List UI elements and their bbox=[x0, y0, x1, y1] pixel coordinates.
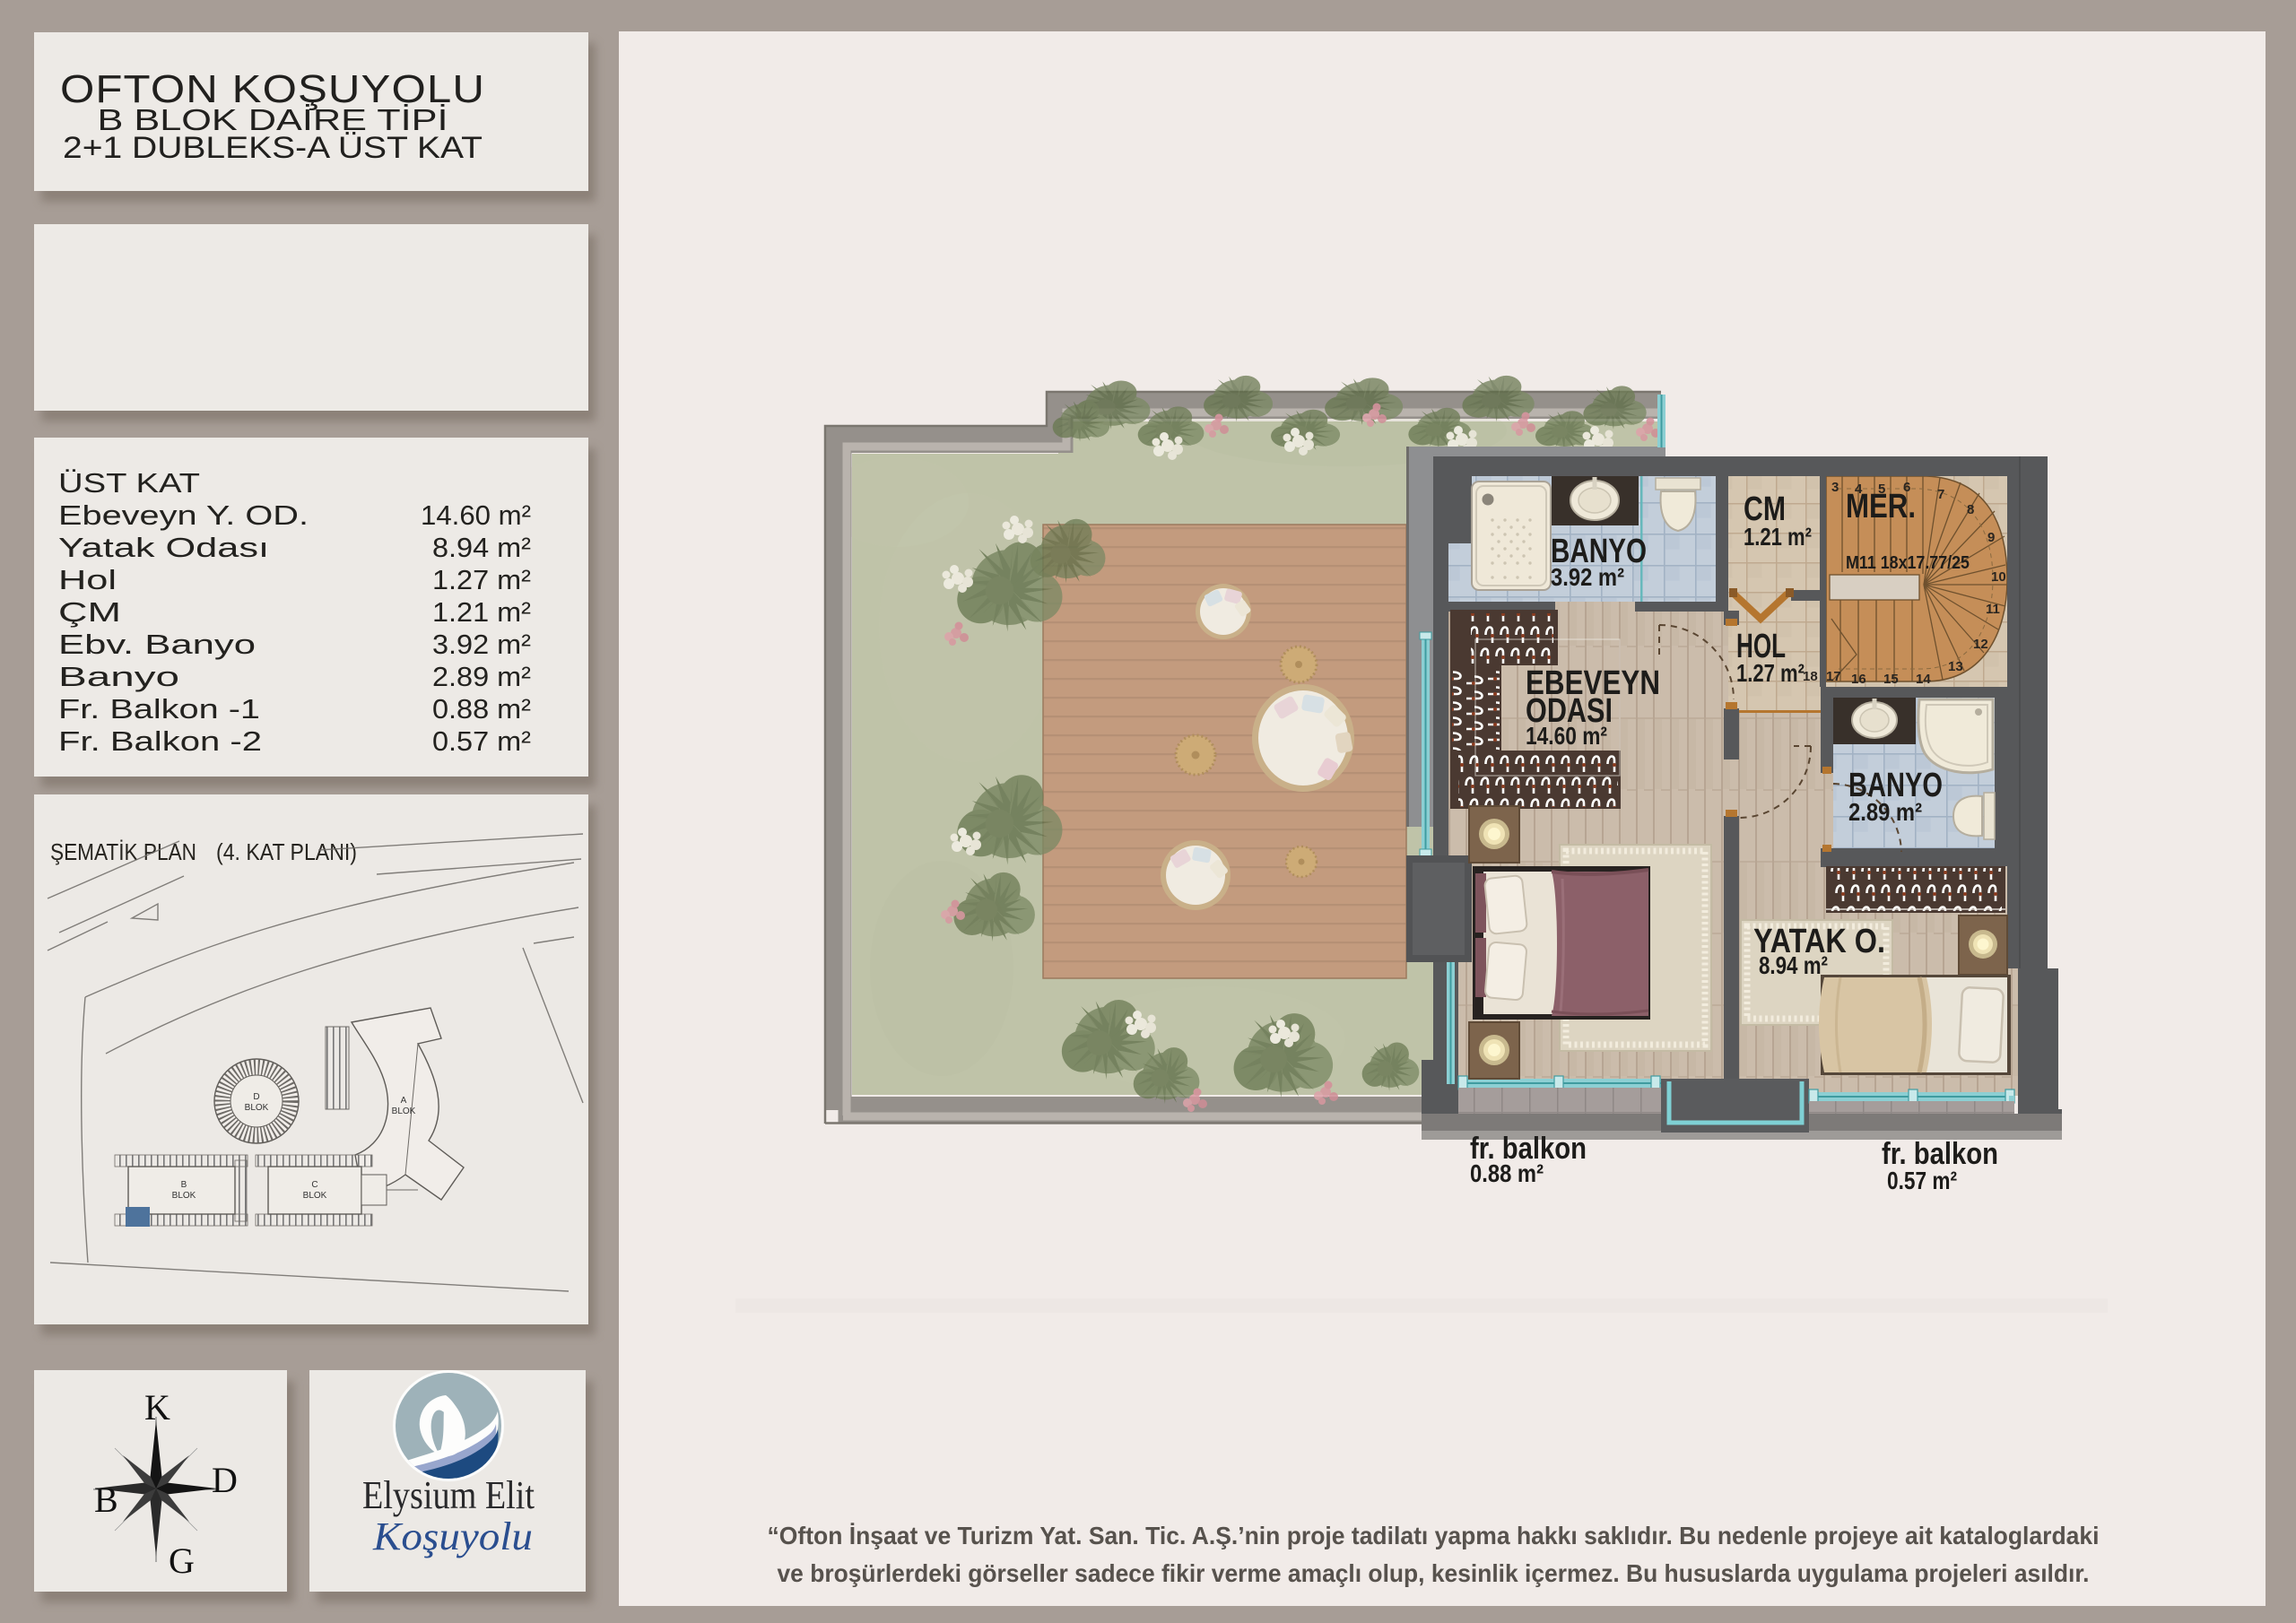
svg-text:C: C bbox=[311, 1180, 317, 1190]
svg-text:D: D bbox=[212, 1460, 238, 1500]
svg-text:14: 14 bbox=[1916, 672, 1931, 687]
svg-text:ÇM: ÇM bbox=[58, 596, 121, 628]
svg-text:14.60 m²: 14.60 m² bbox=[421, 499, 531, 531]
svg-text:3.92 m²: 3.92 m² bbox=[432, 629, 531, 660]
svg-text:3: 3 bbox=[1831, 480, 1839, 495]
svg-text:Banyo: Banyo bbox=[58, 661, 179, 692]
svg-text:18: 18 bbox=[1803, 669, 1818, 684]
svg-text:13: 13 bbox=[1948, 659, 1963, 674]
svg-text:0.88 m²: 0.88 m² bbox=[432, 693, 531, 725]
svg-text:2+1 DUBLEKS-A ÜST KAT: 2+1 DUBLEKS-A ÜST KAT bbox=[63, 131, 483, 165]
svg-text:BLOK: BLOK bbox=[245, 1103, 269, 1113]
svg-text:8.94 m²: 8.94 m² bbox=[1759, 951, 1828, 979]
svg-text:B: B bbox=[94, 1480, 118, 1520]
svg-text:Ebv. Banyo: Ebv. Banyo bbox=[58, 629, 256, 660]
svg-text:1.21 m²: 1.21 m² bbox=[432, 596, 531, 628]
svg-text:14.60 m²: 14.60 m² bbox=[1526, 722, 1607, 750]
svg-text:MER.: MER. bbox=[1846, 488, 1916, 525]
svg-text:Fr. Balkon -1: Fr. Balkon -1 bbox=[58, 693, 260, 725]
svg-text:0.57 m²: 0.57 m² bbox=[1887, 1167, 1957, 1194]
svg-text:9: 9 bbox=[1987, 530, 1995, 545]
svg-text:8: 8 bbox=[1967, 502, 1974, 517]
svg-text:1.27 m²: 1.27 m² bbox=[1736, 659, 1805, 687]
svg-text:1.21 m²: 1.21 m² bbox=[1744, 523, 1812, 551]
svg-text:2.89 m²: 2.89 m² bbox=[1848, 798, 1922, 826]
svg-text:15: 15 bbox=[1883, 672, 1899, 687]
svg-text:ve broşürlerdeki görseller sad: ve broşürlerdeki görseller sadece fikir … bbox=[778, 1559, 2090, 1587]
svg-text:Fr. Balkon -2: Fr. Balkon -2 bbox=[58, 725, 262, 757]
svg-text:7: 7 bbox=[1937, 487, 1944, 502]
svg-text:1.27 m²: 1.27 m² bbox=[432, 564, 531, 595]
svg-text:K: K bbox=[144, 1387, 170, 1428]
svg-text:A: A bbox=[401, 1096, 407, 1106]
svg-text:Hol: Hol bbox=[58, 564, 117, 595]
svg-text:17: 17 bbox=[1826, 669, 1841, 684]
svg-text:D: D bbox=[253, 1092, 259, 1102]
svg-text:G: G bbox=[169, 1541, 195, 1581]
svg-text:(4. KAT PLANI): (4. KAT PLANI) bbox=[216, 838, 357, 865]
svg-text:0.88 m²: 0.88 m² bbox=[1470, 1159, 1544, 1187]
svg-text:10: 10 bbox=[1991, 569, 2006, 585]
svg-text:8.94 m²: 8.94 m² bbox=[432, 532, 531, 563]
svg-text:Koşuyolu: Koşuyolu bbox=[372, 1515, 533, 1558]
svg-text:BLOK: BLOK bbox=[172, 1191, 196, 1201]
svg-text:0.57 m²: 0.57 m² bbox=[432, 725, 531, 757]
svg-text:ÜST KAT: ÜST KAT bbox=[58, 467, 200, 499]
svg-text:11: 11 bbox=[1986, 602, 2000, 617]
svg-text:2.89 m²: 2.89 m² bbox=[432, 661, 531, 692]
svg-text:“Ofton İnşaat ve Turizm Yat. S: “Ofton İnşaat ve Turizm Yat. San. Tic. A… bbox=[768, 1522, 2100, 1549]
svg-text:B: B bbox=[181, 1180, 187, 1190]
svg-text:BLOK: BLOK bbox=[392, 1107, 416, 1116]
svg-text:ŞEMATİK PLAN: ŞEMATİK PLAN bbox=[50, 838, 196, 865]
svg-text:3.92 m²: 3.92 m² bbox=[1551, 563, 1624, 591]
svg-text:Yatak Odası: Yatak Odası bbox=[58, 532, 269, 563]
svg-text:12: 12 bbox=[1973, 637, 1988, 652]
svg-text:M11 18x17.77/25: M11 18x17.77/25 bbox=[1846, 553, 1970, 573]
svg-text:BLOK: BLOK bbox=[303, 1191, 327, 1201]
svg-text:Elysium Elit: Elysium Elit bbox=[362, 1473, 535, 1517]
svg-text:16: 16 bbox=[1851, 672, 1866, 687]
svg-text:Ebeveyn Y. OD.: Ebeveyn Y. OD. bbox=[58, 499, 309, 531]
